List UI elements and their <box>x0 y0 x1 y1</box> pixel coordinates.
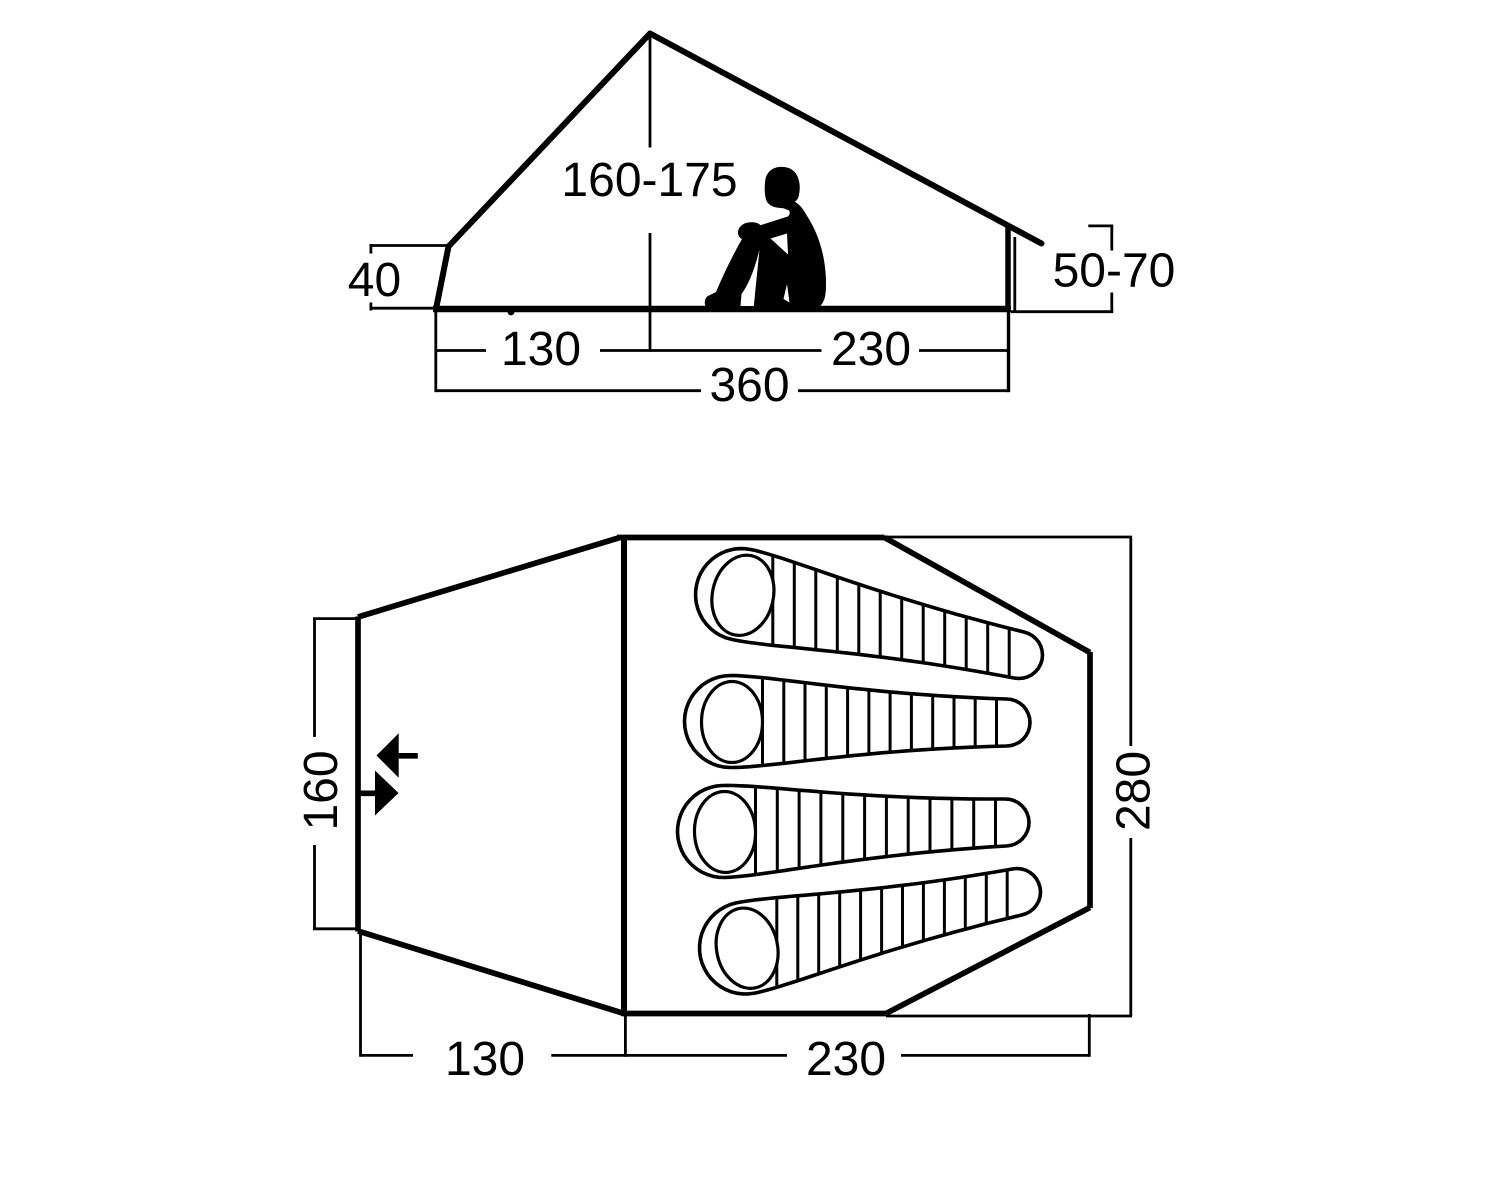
svg-text:40: 40 <box>348 254 401 307</box>
svg-text:50-70: 50-70 <box>1053 245 1176 298</box>
svg-text:160-175: 160-175 <box>561 154 737 207</box>
svg-text:280: 280 <box>1108 751 1161 831</box>
svg-text:130: 130 <box>445 1033 525 1086</box>
svg-text:130: 130 <box>501 323 581 376</box>
svg-text:230: 230 <box>831 323 911 376</box>
svg-text:360: 360 <box>709 359 789 412</box>
svg-text:160: 160 <box>295 750 348 830</box>
svg-text:230: 230 <box>806 1033 886 1086</box>
